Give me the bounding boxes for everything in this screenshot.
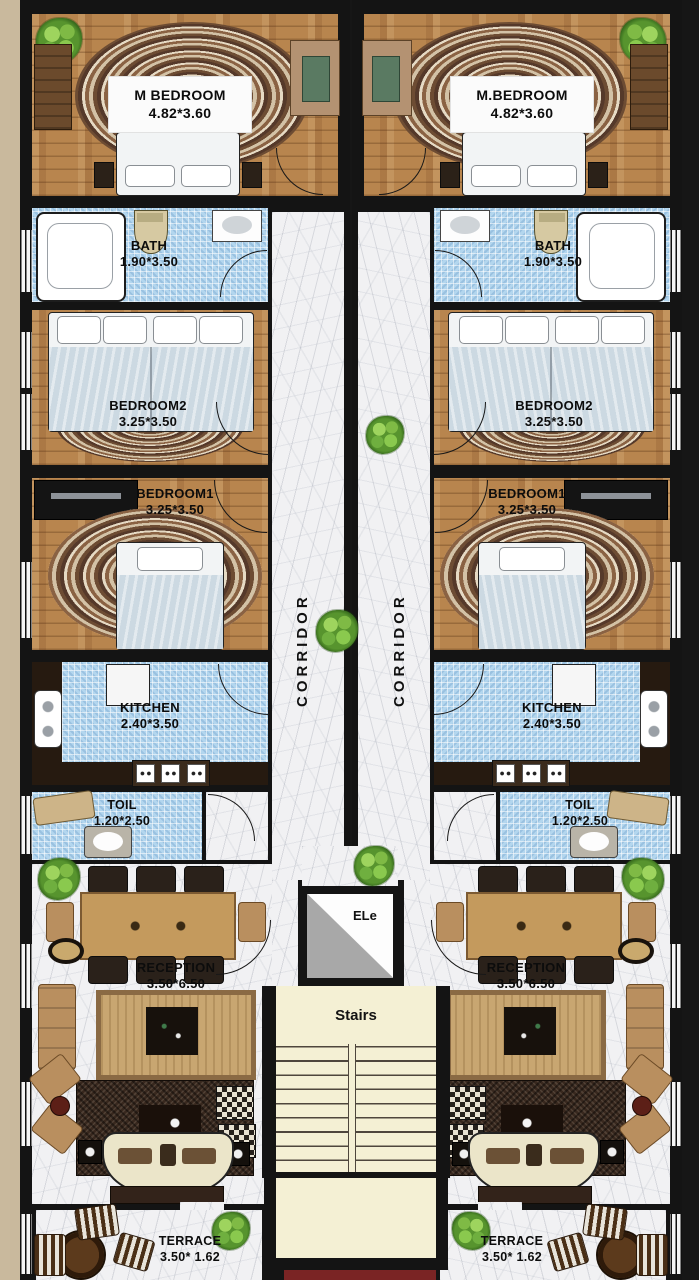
dining-chair (136, 866, 176, 894)
room-name: M.BEDROOM (453, 87, 591, 105)
room-toilet: TOIL 1.20*2.50 (500, 792, 670, 860)
room-name: TERRACE (132, 1234, 248, 1250)
stairs-landing-top: Stairs (276, 986, 436, 1044)
kitchen-sink (34, 690, 62, 748)
room-dims: 1.20*2.50 (510, 814, 650, 830)
sofa-cushion (182, 1148, 216, 1164)
terrace-chair (74, 1203, 120, 1241)
dining-chair (184, 866, 224, 894)
bath-label: BATH 1.90*3.50 (84, 238, 214, 271)
window (20, 394, 32, 450)
dining-chair (46, 902, 74, 942)
toilet-tank (539, 213, 565, 222)
room-dims: 4.82*3.60 (111, 105, 249, 123)
stair-steps-left (276, 1046, 348, 1170)
room-master-bedroom: M BEDROOM 4.82*3.60 (32, 14, 338, 196)
window (670, 1082, 682, 1146)
corridor-label-right: CORRIDOR (391, 545, 415, 755)
terrace-chair (34, 1234, 66, 1276)
door-arc (433, 664, 484, 715)
toilet-lobby (206, 792, 268, 860)
room-name: KITCHEN (80, 700, 220, 716)
room-dims: 4.82*3.60 (453, 105, 591, 123)
bath-label: BATH 1.90*3.50 (488, 238, 618, 271)
sofa-table (504, 1007, 556, 1055)
area-rug (96, 990, 256, 1080)
wash-basin (212, 210, 262, 242)
sofa-cushion (160, 1144, 176, 1166)
room-bath: BATH 1.90*3.50 (434, 208, 670, 302)
terrace-label: TERRACE 3.50* 1.62 (454, 1234, 570, 1265)
elevator-label: ELe (353, 908, 377, 923)
desk-blotter (302, 56, 330, 102)
room-dims: 3.25*3.50 (474, 414, 634, 430)
desk (362, 40, 412, 116)
room-kitchen: KITCHEN 2.40*3.50 (32, 662, 268, 785)
room-dims: 3.50* 1.62 (132, 1250, 248, 1266)
basin-bowl (579, 832, 609, 851)
desk-blotter (372, 56, 400, 102)
window (670, 1214, 682, 1274)
single-bed (116, 542, 224, 650)
window (20, 1082, 32, 1146)
elevator: ELe (299, 886, 401, 986)
blanket (479, 575, 585, 649)
basin-bowl (450, 216, 480, 234)
corner-table (600, 1140, 624, 1164)
basin-bowl (93, 832, 123, 851)
potted-plant-icon (38, 858, 80, 900)
room-name: M BEDROOM (111, 87, 249, 105)
burner (161, 764, 180, 783)
room-dims: 3.50* 1.62 (454, 1250, 570, 1266)
potted-plant-icon (622, 858, 664, 900)
window (20, 230, 32, 292)
room-dims: 2.40*3.50 (482, 716, 622, 732)
room-name: BATH (84, 238, 214, 254)
pillow (527, 165, 577, 187)
burner (136, 764, 155, 783)
pillow (555, 316, 599, 344)
sofa (468, 1132, 600, 1194)
sofa-table (146, 1007, 198, 1055)
dining-chair (526, 866, 566, 894)
pouf (448, 1086, 486, 1120)
pillow (505, 316, 549, 344)
burner (522, 764, 541, 783)
nightstand (94, 162, 114, 188)
stairs-flights (276, 1044, 436, 1172)
window (670, 230, 682, 292)
room-name: BEDROOM2 (68, 398, 228, 414)
dining-chair (628, 902, 656, 942)
dining-chair (478, 866, 518, 894)
stairs-label: Stairs (335, 1007, 377, 1024)
sofa-cushion (526, 1144, 542, 1166)
decor-bowl (48, 938, 84, 964)
window (670, 796, 682, 854)
nightstand (588, 162, 608, 188)
burner (547, 764, 566, 783)
dining-table (466, 892, 622, 960)
door-arc (208, 794, 255, 841)
pillow (137, 547, 203, 571)
stair-wall (436, 1178, 448, 1270)
window (670, 944, 682, 1008)
room-dims: 2.40*3.50 (80, 716, 220, 732)
room-bedroom2: BEDROOM2 3.25*3.50 (434, 310, 670, 465)
double-bed (462, 132, 586, 196)
entry-hall (272, 880, 298, 992)
room-name: BEDROOM2 (474, 398, 634, 414)
bedroom2-label: BEDROOM2 3.25*3.50 (474, 398, 634, 431)
toilet-lobby (434, 792, 496, 860)
window (20, 562, 32, 638)
window (670, 562, 682, 638)
corner-table (78, 1140, 102, 1164)
single-bed (478, 542, 586, 650)
room-terrace: TERRACE 3.50* 1.62 (36, 1210, 262, 1280)
wash-basin (84, 826, 132, 858)
blanket (117, 575, 223, 649)
pouf (216, 1086, 254, 1120)
room-toilet: TOIL 1.20*2.50 (32, 792, 202, 860)
toilet-label: TOIL 1.20*2.50 (52, 798, 192, 829)
wash-basin (440, 210, 490, 242)
bedroom2-label: BEDROOM2 3.25*3.50 (68, 398, 228, 431)
room-name: TERRACE (454, 1234, 570, 1250)
room-name: BATH (488, 238, 618, 254)
kitchen-sink (640, 690, 668, 748)
stairs-landing-bottom (276, 1178, 436, 1258)
corridor-label-left: CORRIDOR (294, 545, 318, 755)
wardrobe (630, 44, 668, 130)
window (670, 332, 682, 388)
door-arc (379, 148, 426, 195)
stove (492, 760, 570, 787)
door-arc (447, 794, 494, 841)
room-reception: RECEPTION 3.50*6.50 (430, 864, 670, 1204)
door-arc (218, 664, 269, 715)
pillow (199, 316, 243, 344)
window (20, 944, 32, 1008)
master-bedroom-label: M BEDROOM 4.82*3.60 (108, 76, 252, 133)
room-dims: 1.90*3.50 (84, 254, 214, 270)
pillow (499, 547, 565, 571)
wardrobe (34, 44, 72, 130)
room-master-bedroom: M.BEDROOM 4.82*3.60 (364, 14, 670, 196)
room-dims: 3.25*3.50 (68, 414, 228, 430)
window (670, 394, 682, 450)
room-dims: 1.20*2.50 (52, 814, 192, 830)
door-arc (220, 250, 267, 297)
sofa-cushion (550, 1148, 584, 1164)
decor-bowl (618, 938, 654, 964)
side-table (632, 1096, 652, 1116)
stove (132, 760, 210, 787)
burner (496, 764, 515, 783)
pillow (103, 316, 147, 344)
room-bedroom1: BEDROOM1 3.25*3.50 (434, 478, 670, 650)
window (20, 332, 32, 388)
room-kitchen: KITCHEN 2.40*3.50 (434, 662, 670, 785)
bottom-wall (264, 1258, 448, 1270)
stair-wall (264, 1178, 276, 1270)
dining-chair (574, 866, 614, 894)
window (20, 796, 32, 854)
stair-steps-right (356, 1046, 436, 1170)
sofa (102, 1132, 234, 1194)
desk (290, 40, 340, 116)
room-dims: 1.90*3.50 (488, 254, 618, 270)
terrace-chair (582, 1203, 628, 1241)
room-name: TOIL (52, 798, 192, 814)
burner (187, 764, 206, 783)
pillow (153, 316, 197, 344)
wash-basin (570, 826, 618, 858)
entry-hall (404, 880, 430, 992)
area-rug (446, 990, 606, 1080)
pillow (471, 165, 521, 187)
stair-divider (348, 1044, 356, 1172)
pillow (601, 316, 645, 344)
pillow (459, 316, 503, 344)
master-bedroom-label: M.BEDROOM 4.82*3.60 (450, 76, 594, 133)
room-bedroom1: BEDROOM1 3.25*3.50 (32, 478, 268, 650)
stairwell: Stairs (262, 986, 450, 1178)
toilet-label: TOIL 1.20*2.50 (510, 798, 650, 829)
room-bedroom2: BEDROOM2 3.25*3.50 (32, 310, 268, 465)
room-name: TOIL (510, 798, 650, 814)
basin-bowl (222, 216, 252, 234)
room-bath: BATH 1.90*3.50 (32, 208, 268, 302)
sofa-cushion (118, 1148, 152, 1164)
toilet-tank (137, 213, 163, 222)
room-name: KITCHEN (482, 700, 622, 716)
nightstand (440, 162, 460, 188)
double-bed (116, 132, 240, 196)
pillow (125, 165, 175, 187)
room-reception: RECEPTION 3.50*6.50 (32, 864, 272, 1204)
room-terrace: TERRACE 3.50* 1.62 (440, 1210, 666, 1280)
nightstand (242, 162, 262, 188)
entrance-step (284, 1270, 436, 1280)
dining-chair (88, 866, 128, 894)
terrace-label: TERRACE 3.50* 1.62 (132, 1234, 248, 1265)
terrace-chair (636, 1234, 668, 1276)
window (20, 1214, 32, 1274)
floor-plan: M BEDROOM 4.82*3.60 BATH 1.90*3.50 (0, 0, 699, 1280)
pillow (57, 316, 101, 344)
sofa-cushion (486, 1148, 520, 1164)
side-table (50, 1096, 70, 1116)
pillow (181, 165, 231, 187)
door-arc (435, 250, 482, 297)
kitchen-label: KITCHEN 2.40*3.50 (482, 700, 622, 733)
door-arc (276, 148, 323, 195)
kitchen-label: KITCHEN 2.40*3.50 (80, 700, 220, 733)
dining-table (80, 892, 236, 960)
